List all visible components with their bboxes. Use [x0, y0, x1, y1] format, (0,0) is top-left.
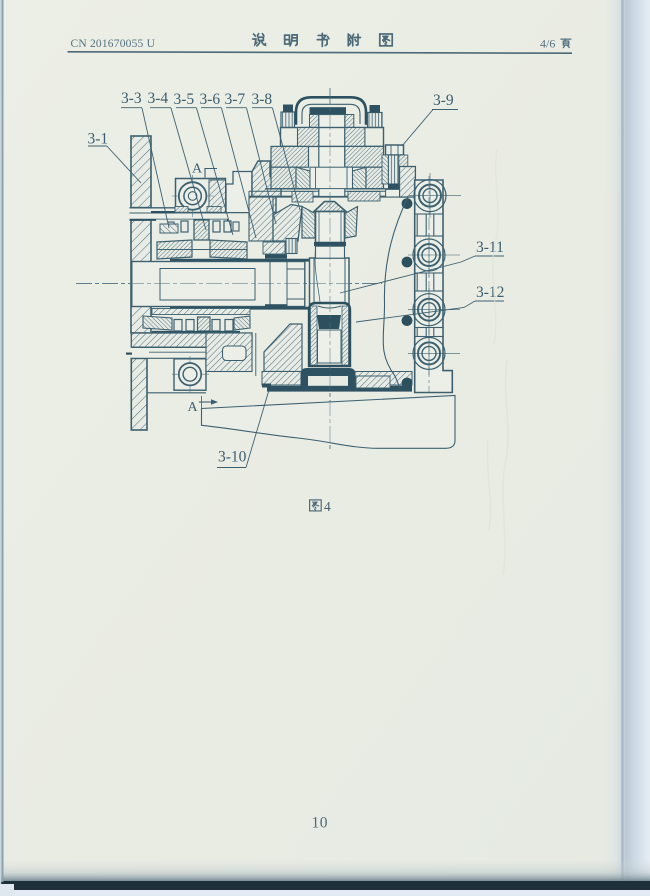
svg-text:3-3: 3-3: [121, 90, 142, 107]
svg-text:10: 10: [312, 815, 329, 832]
svg-text:3-12: 3-12: [476, 284, 504, 301]
svg-text:3-9: 3-9: [433, 92, 454, 109]
svg-text:3-1: 3-1: [88, 131, 109, 148]
svg-text:3-5: 3-5: [174, 91, 195, 108]
svg-text:3-6: 3-6: [200, 91, 221, 108]
svg-text:3-4: 3-4: [148, 90, 169, 107]
svg-text:3-8: 3-8: [252, 91, 273, 108]
svg-text:CN 201670055 U: CN 201670055 U: [71, 38, 156, 50]
svg-text:3-11: 3-11: [476, 239, 504, 256]
svg-text:A: A: [192, 162, 203, 177]
svg-text:3-7: 3-7: [225, 91, 246, 108]
svg-text:A: A: [188, 400, 199, 415]
svg-text:3-10: 3-10: [218, 449, 247, 466]
svg-text:4/6: 4/6: [540, 37, 555, 51]
svg-text:4: 4: [324, 499, 331, 514]
